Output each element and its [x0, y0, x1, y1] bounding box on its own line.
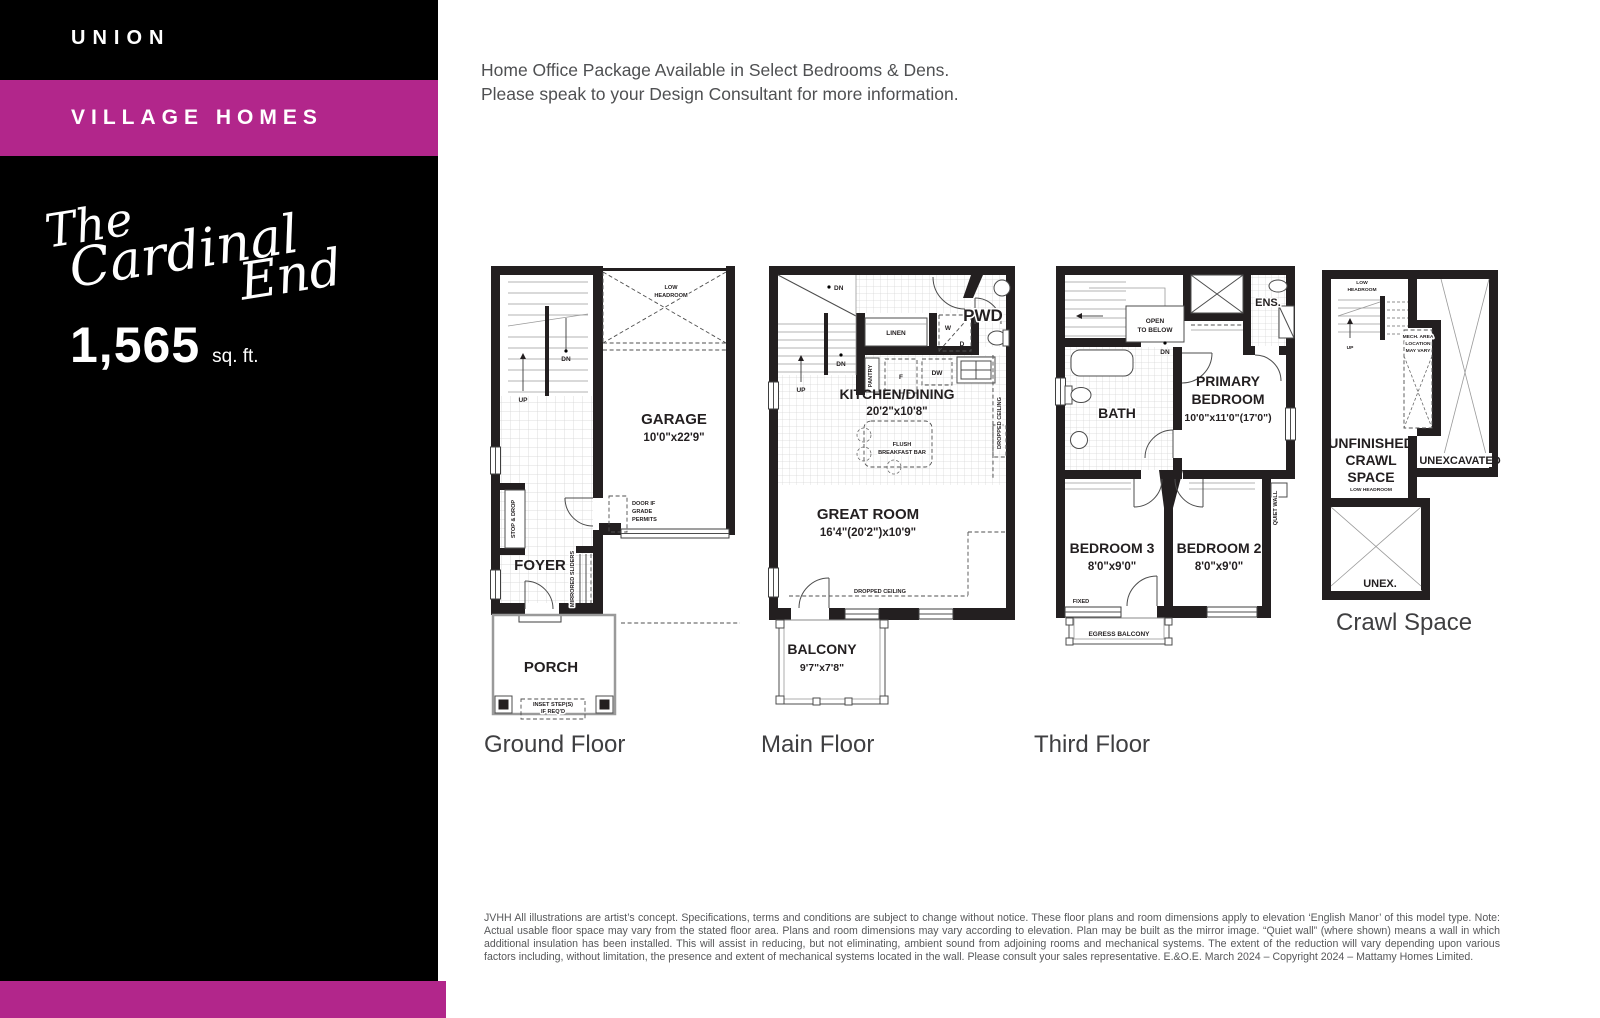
dw-label: DW	[932, 370, 944, 377]
main-dn-mid-label: DN	[836, 361, 846, 368]
mech-label-3: MAY VARY	[1406, 348, 1431, 354]
garage-dim: 10'0"x22'9"	[643, 432, 704, 444]
unfinished-crawl-space: UNFINISHED CRAWL SPACE LOW HEADROOM	[1328, 435, 1414, 493]
ground-stairs: DN UP	[508, 282, 588, 404]
foyer-label: FOYER	[514, 557, 566, 574]
main-floor-plan: DN DN UP LINEN W D PWD PANTRY	[761, 258, 1023, 708]
model-name-script: The Cardinal End	[29, 151, 406, 344]
primary-label-1: PRIMARY	[1196, 373, 1261, 389]
third-linen-closet	[1191, 275, 1243, 330]
balcony: BALCONY 9'7"x7'8"	[776, 620, 888, 705]
series-band: VILLAGE HOMES	[0, 80, 438, 156]
stove	[957, 357, 995, 383]
main-floor-name: Main Floor	[761, 731, 874, 759]
unfinished-label-1: UNFINISHED	[1328, 435, 1414, 451]
header-note: Home Office Package Available in Select …	[481, 59, 959, 106]
crawl-low-label-2: HEADROOM	[1347, 287, 1376, 293]
great-room-dim: 16'4"(20'2")x10'9"	[820, 527, 916, 539]
egress-balcony-label: EGRESS BALCONY	[1088, 631, 1150, 638]
grade-door-label-2: GRADE	[632, 509, 652, 515]
unexcavated-label: UNEXCAVATED	[1419, 455, 1500, 467]
egress-balcony: EGRESS BALCONY	[1066, 618, 1172, 645]
crawl-stairs: UP	[1338, 296, 1408, 351]
unex-box: UNEX.	[1331, 507, 1422, 591]
series-band-label: VILLAGE HOMES	[71, 80, 438, 156]
ground-floor-name: Ground Floor	[484, 731, 625, 759]
third-floor-plan: OPEN TO BELOW DN ENS. BATH	[1031, 258, 1303, 650]
brand-union: UNION	[71, 27, 170, 50]
garage-door	[621, 529, 729, 538]
flush-label-2: BREAKFAST BAR	[878, 450, 926, 456]
inset-steps-label-2: IF REQ'D	[541, 709, 565, 715]
low-headroom-label-2: HEADROOM	[654, 293, 688, 299]
kitchen-dim: 20'2"x10'8"	[866, 406, 927, 418]
stop-and-drop: STOP & DROP	[505, 490, 525, 548]
porch: PORCH INSET STEP(S) IF REQ'D	[493, 615, 615, 719]
ground-floor-plan: LOW HEADROOM DN UP GARAGE 10'0"x22'9"	[483, 258, 743, 720]
mech-area: MECH. AREA LOCATION MAY VARY	[1403, 330, 1434, 428]
square-footage-value: 1,565	[70, 317, 200, 373]
linen-closet: LINEN	[865, 318, 927, 346]
grade-door-label-3: PERMITS	[632, 517, 657, 523]
flush-label-1: FLUSH	[893, 442, 912, 448]
header-note-line1: Home Office Package Available in Select …	[481, 59, 959, 83]
fixed-label: FIXED	[1073, 599, 1089, 605]
pwd-label: PWD	[963, 306, 1003, 325]
bedroom2: BEDROOM 2 8'0"x9'0"	[1175, 479, 1262, 573]
third-floor-name: Third Floor	[1034, 731, 1150, 759]
crawl-space-name: Crawl Space	[1336, 609, 1472, 637]
kitchen-label: KITCHEN/DINING	[839, 386, 954, 402]
dryer-label: D	[960, 341, 965, 348]
page: UNION VILLAGE HOMES The Cardinal End 1,5…	[0, 0, 1600, 1018]
primary-bedroom: PRIMARY BEDROOM 10'0"x11'0"(17'0")	[1182, 353, 1272, 424]
dropped-ceiling-h-label: DROPPED CEILING	[854, 589, 906, 595]
quiet-wall-label: QUIET WALL	[1273, 490, 1279, 525]
pantry-label: PANTRY	[868, 365, 874, 388]
bedroom2-label: BEDROOM 2	[1177, 540, 1262, 556]
fridge-label: F	[899, 374, 903, 381]
brand-sidebar: UNION VILLAGE HOMES The Cardinal End 1,5…	[0, 0, 438, 981]
open-to-below-label-1: OPEN	[1146, 318, 1165, 325]
dropped-ceiling-v-label: DROPPED CEILING	[997, 397, 1003, 449]
stop-drop-label: STOP & DROP	[511, 500, 517, 539]
open-to-below-label-2: TO BELOW	[1138, 327, 1174, 334]
unfinished-label-3: SPACE	[1347, 469, 1394, 485]
header-note-line2: Please speak to your Design Consultant f…	[481, 83, 959, 107]
square-footage: 1,565sq. ft.	[70, 316, 259, 374]
crawl-low-label-1: LOW	[1356, 280, 1368, 286]
ground-dn-label: DN	[561, 356, 571, 363]
ens-label: ENS.	[1255, 297, 1281, 309]
unex-label: UNEX.	[1363, 578, 1397, 590]
garage-label: GARAGE	[641, 411, 707, 428]
square-footage-unit: sq. ft.	[212, 346, 258, 367]
low-headroom-label-1: LOW	[664, 285, 678, 291]
linen-label: LINEN	[886, 330, 906, 337]
porch-label: PORCH	[524, 659, 578, 676]
mech-label-1: MECH. AREA	[1403, 334, 1434, 340]
washer-label: W	[945, 325, 952, 332]
main-up-label: UP	[796, 387, 806, 394]
balcony-label: BALCONY	[787, 641, 857, 657]
bedroom2-dim: 8'0"x9'0"	[1195, 561, 1243, 573]
bedroom3-label: BEDROOM 3	[1070, 540, 1155, 556]
main-dn-top-label: DN	[834, 285, 844, 292]
great-room: GREAT ROOM 16'4"(20'2")x10'9" DROPPED CE…	[789, 506, 1006, 608]
balcony-dim: 9'7"x7'8"	[800, 662, 844, 674]
bedroom3-dim: 8'0"x9'0"	[1088, 561, 1136, 573]
grade-door-label-1: DOOR IF	[632, 501, 656, 507]
mech-label-2: LOCATION	[1405, 341, 1431, 347]
low-headroom-area: LOW HEADROOM	[603, 272, 726, 350]
inset-steps-label-1: INSET STEP(S)	[533, 702, 573, 708]
unexcavated-area: UNEXCAVATED	[1419, 279, 1500, 467]
crawl-up-label: UP	[1347, 345, 1355, 351]
crawl-low-headroom-sub: LOW HEADROOM	[1350, 487, 1392, 493]
ground-up-label: UP	[518, 397, 528, 404]
bath-label: BATH	[1098, 405, 1136, 421]
bottom-accent-strip	[0, 981, 446, 1018]
great-room-label: GREAT ROOM	[817, 506, 919, 523]
unfinished-label-2: CRAWL	[1345, 452, 1397, 468]
primary-label-2: BEDROOM	[1191, 391, 1264, 407]
primary-dim: 10'0"x11'0"(17'0")	[1184, 412, 1271, 424]
mirrored-sliders-label: MIRRORED SLIDERS	[570, 551, 576, 608]
bedroom3: BEDROOM 3 8'0"x9'0" FIXED	[1065, 479, 1162, 606]
legal-disclaimer: JVHH All illustrations are artist’s conc…	[484, 912, 1500, 964]
crawl-space-plan: LOW HEADROOM UP MECH. AREA LOCATION MAY …	[1310, 258, 1506, 604]
third-dn-label: DN	[1160, 349, 1170, 356]
